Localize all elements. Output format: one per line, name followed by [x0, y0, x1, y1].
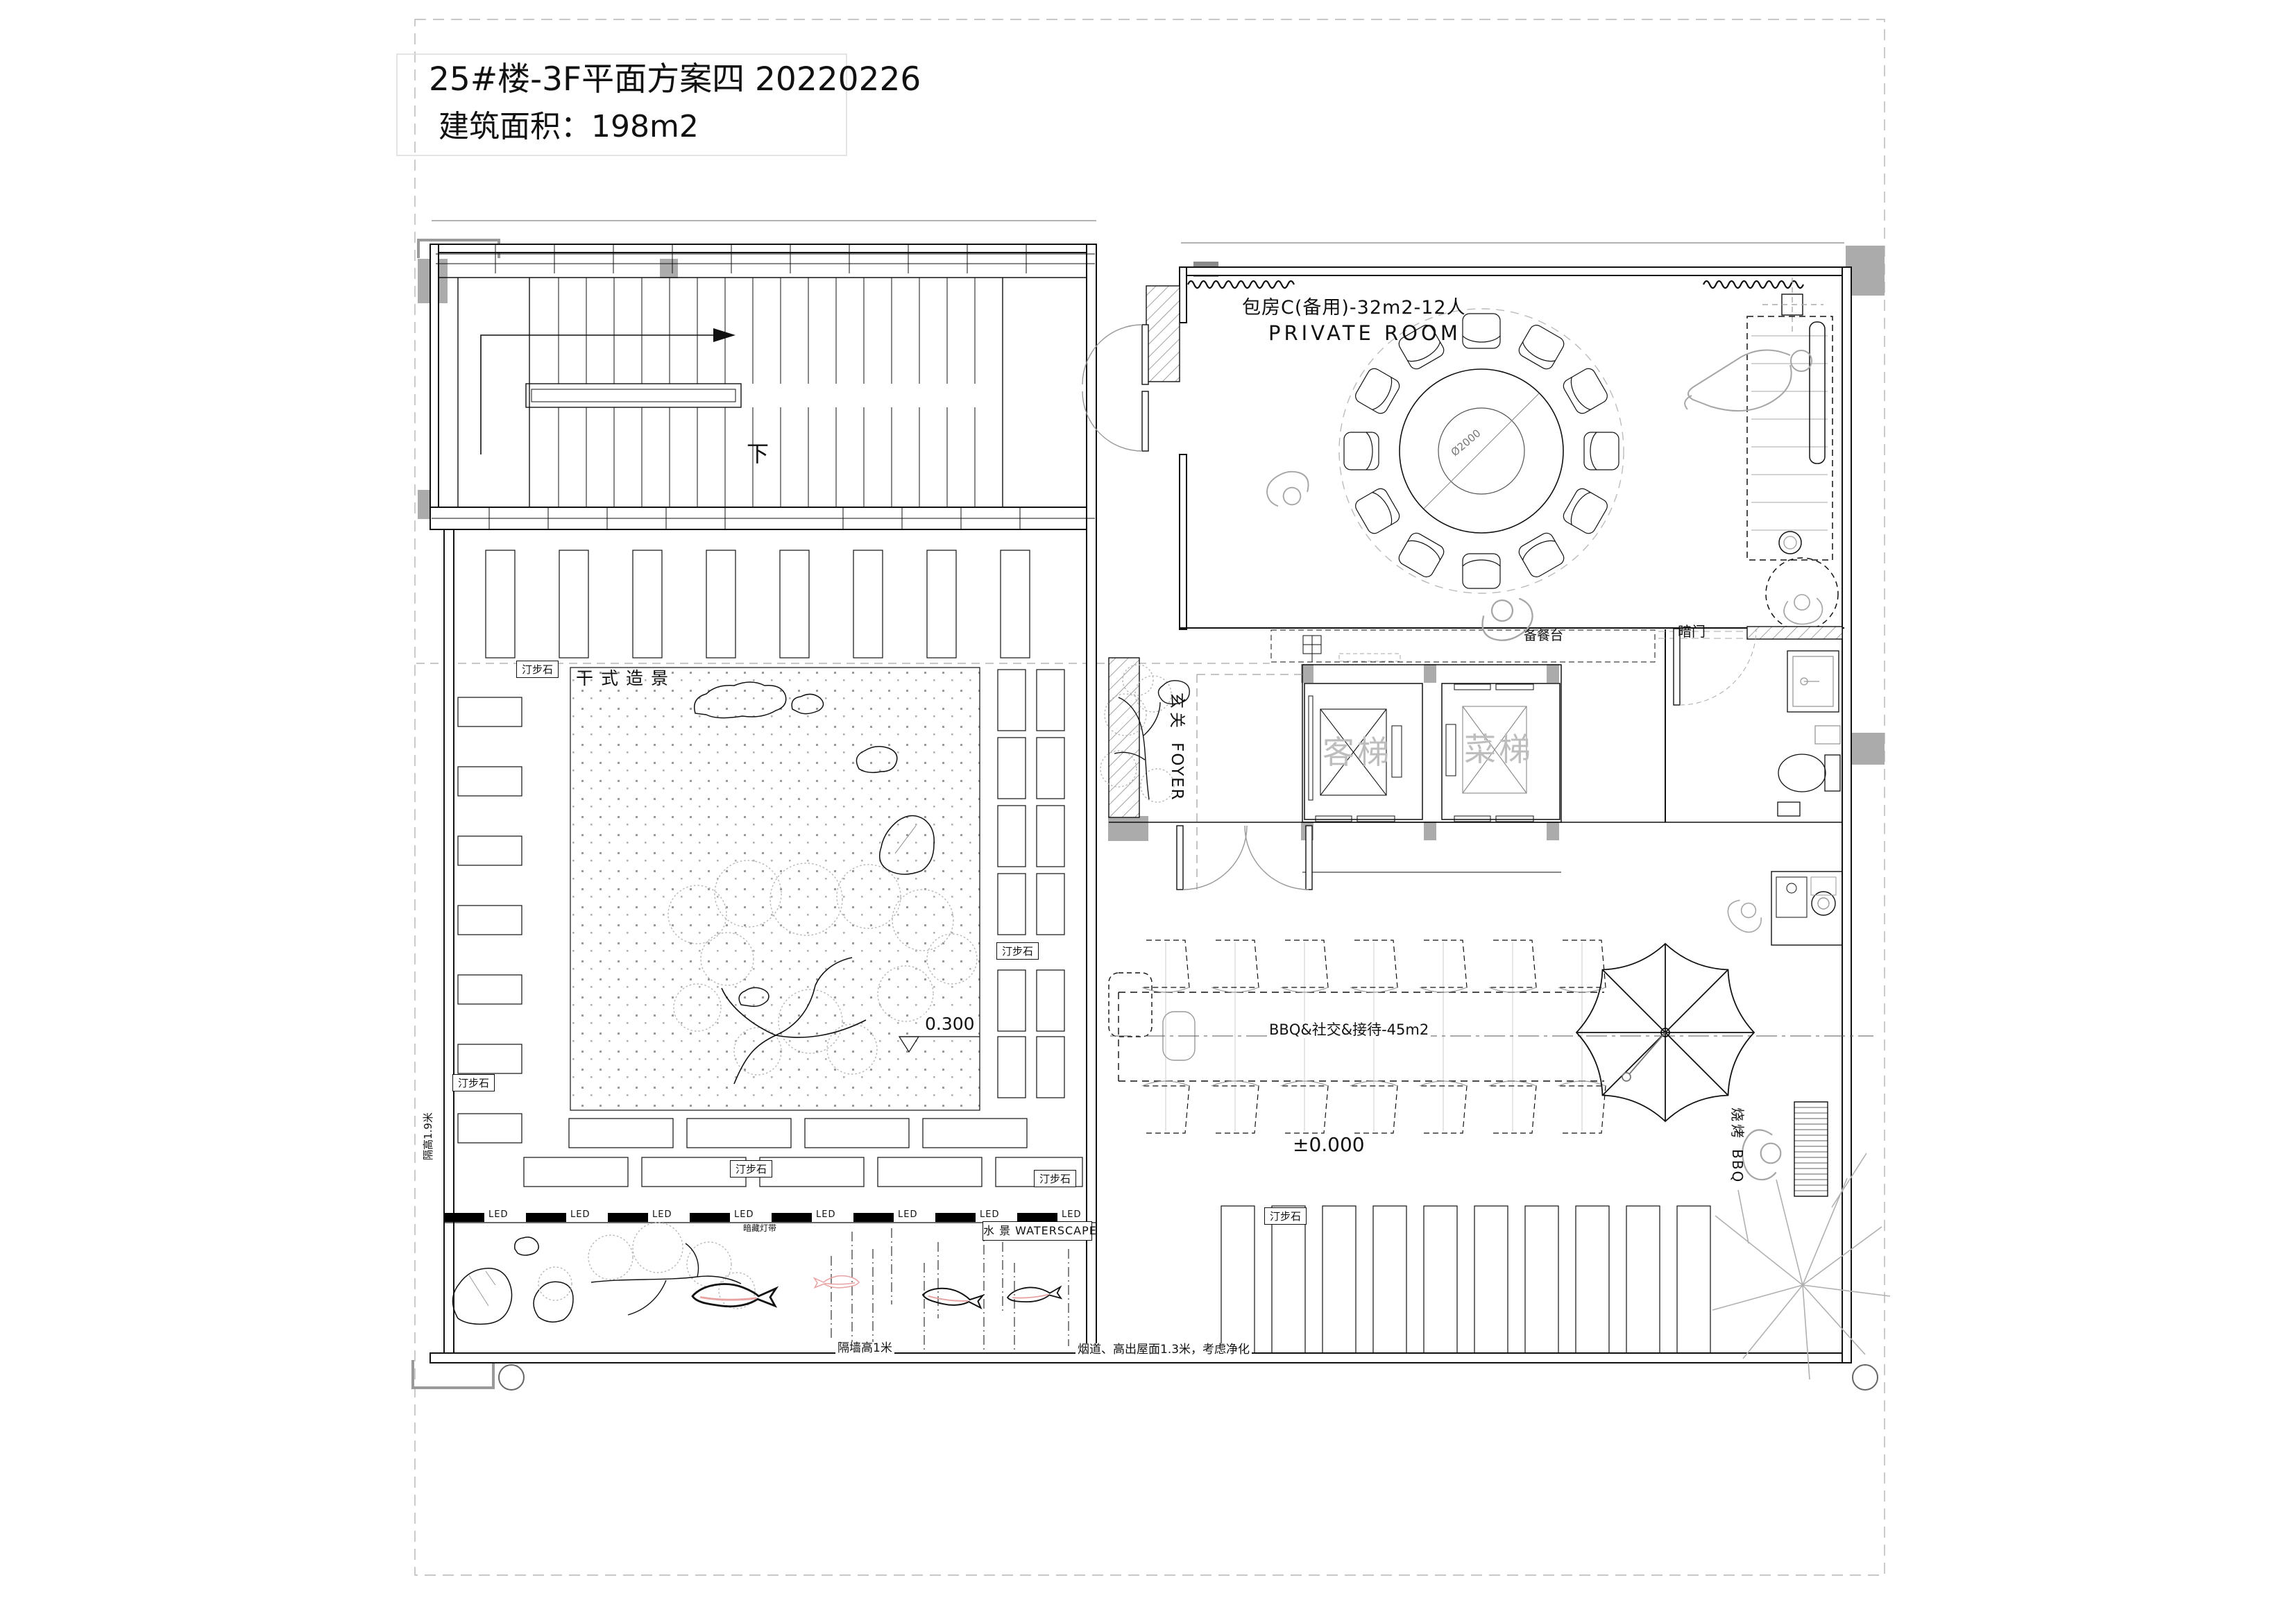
flue-note: 烟道、高出屋面1.3米，考虑净化	[1075, 1343, 1252, 1357]
drawing-subtitle-area: 建筑面积：198m2	[439, 110, 699, 145]
stepping-stone-label: 汀步石	[996, 942, 1039, 960]
water-tree-foliage	[538, 1223, 755, 1309]
stepping-stone-label: 汀步石	[1034, 1170, 1076, 1187]
led-label: LED	[570, 1209, 590, 1220]
garden-elevation-label: 0.300	[923, 1014, 977, 1035]
stair-down-label: 下	[747, 441, 769, 467]
reeds	[831, 1227, 1069, 1353]
left-partition-note: 隔高1.9米	[420, 1112, 435, 1160]
elevator-service-label: 菜梯	[1464, 731, 1533, 768]
grill-label-en: BBQ	[1729, 1149, 1746, 1183]
grill-label: 烧烤BBQ	[1728, 1107, 1749, 1183]
led-strip-bar	[526, 1213, 566, 1222]
drawing-title: 25#楼-3F平面方案四 20220226	[429, 61, 921, 99]
prep-counter	[1271, 630, 1655, 662]
grill-station	[1794, 1102, 1828, 1196]
foyer	[1100, 658, 1312, 890]
stepping-stone-label: 汀步石	[1264, 1207, 1307, 1225]
foyer-label: 玄关FOYER	[1167, 692, 1191, 801]
waterscape	[444, 1223, 1096, 1353]
led-label: LED	[816, 1209, 835, 1220]
water-rocks	[452, 1237, 573, 1324]
prep-counter-label: 备餐台	[1524, 629, 1563, 644]
outdoor-sink-counter	[1771, 872, 1842, 945]
staircase	[439, 278, 1087, 507]
insulation-squiggle	[1188, 281, 1294, 288]
stepping-stone-label: 汀步石	[452, 1074, 495, 1091]
led-strip-bar	[772, 1213, 812, 1222]
foyer-label-cn: 玄关	[1168, 692, 1186, 731]
hidden-door-label: 暗门	[1678, 624, 1706, 640]
stepping-stone-label: 汀步石	[516, 661, 559, 678]
led-label: LED	[652, 1209, 672, 1220]
insulation-squiggle	[1703, 281, 1803, 288]
window-bands	[432, 244, 1095, 529]
led-label: LED	[980, 1209, 999, 1220]
bbq-elevation-label: ±0.000	[1291, 1134, 1367, 1156]
private-room-label-en: PRIVATE ROOM	[1268, 322, 1461, 345]
grill-label-cn: 烧烤	[1729, 1107, 1746, 1141]
dry-garden-label: 干式造景	[576, 669, 676, 689]
partition-wall-note: 隔墙高1米	[835, 1342, 894, 1356]
bathroom	[1778, 651, 1840, 816]
led-strip-bar	[853, 1213, 894, 1222]
led-strip-bar	[608, 1213, 648, 1222]
floor-plan-page: { "title": { "line1": "25#楼-3F平面方案四 2022…	[0, 0, 2296, 1623]
toilet	[1778, 754, 1840, 792]
led-label: LED	[488, 1209, 508, 1220]
round-dining-table	[1339, 309, 1624, 593]
led-strip-bar	[690, 1213, 730, 1222]
led-strip-bar	[935, 1213, 976, 1222]
reclining-person	[1685, 350, 1812, 411]
private-room-label-cn: 包房C(备用)-32m2-12人	[1242, 297, 1466, 318]
led-label: LED	[734, 1209, 754, 1220]
waterscape-label: 水 景 WATERSCAPE	[983, 1221, 1092, 1241]
led-strip-bar	[444, 1213, 484, 1222]
koi-fish	[692, 1276, 1062, 1309]
led-label: LED	[1062, 1209, 1081, 1220]
elevator-passenger-label: 客梯	[1323, 734, 1392, 771]
bbq-zone-label: BBQ&社交&接待-45m2	[1267, 1021, 1431, 1038]
led-label: LED	[898, 1209, 917, 1220]
foyer-label-en: FOYER	[1168, 742, 1186, 801]
umbrella	[1576, 944, 1754, 1121]
daybed-lounger	[1747, 316, 1838, 630]
bbq-terrace	[1109, 872, 1890, 1379]
dry-garden	[570, 668, 980, 1110]
stepping-stone-label: 汀步石	[730, 1160, 772, 1178]
floor-plan-canvas	[0, 0, 2296, 1623]
deck-planks	[1221, 1206, 1710, 1353]
hidden-light-note: 暗藏灯带	[741, 1224, 779, 1234]
led-strip-bar	[1017, 1213, 1057, 1222]
stair-direction-arrow	[481, 335, 713, 454]
end-armchair	[1109, 973, 1152, 1037]
